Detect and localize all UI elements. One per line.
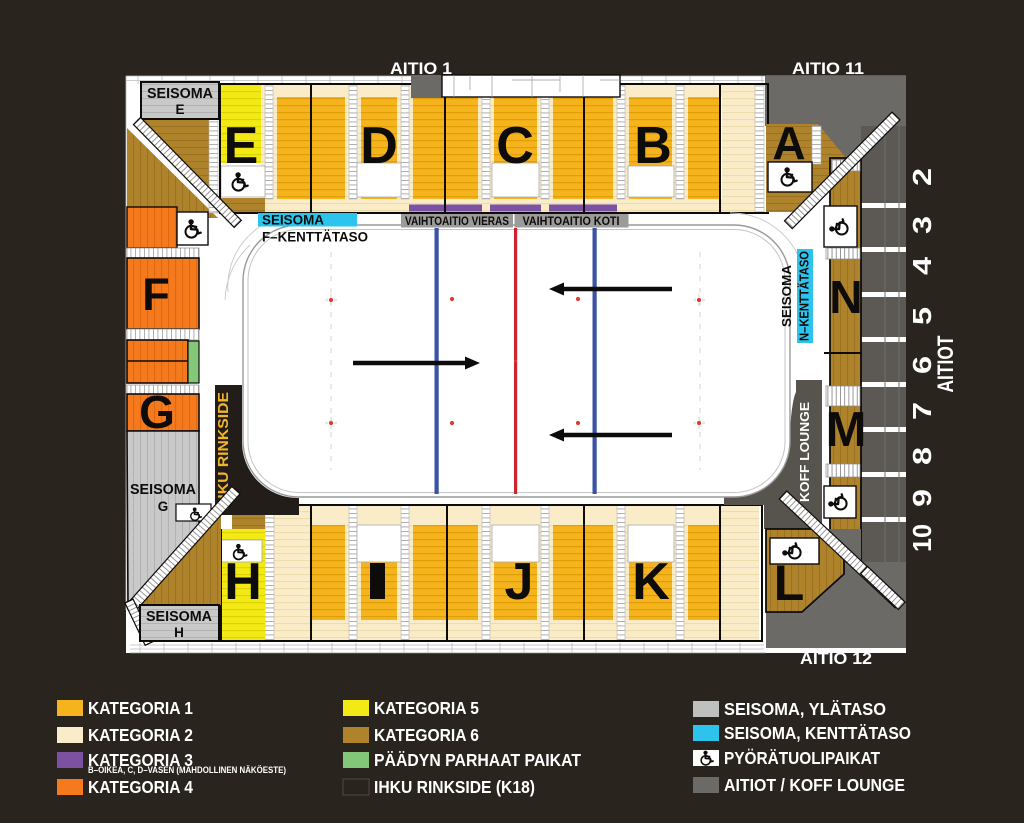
svg-text:6: 6 — [907, 356, 937, 374]
svg-text:K: K — [632, 553, 670, 611]
svg-text:SEISOMA, KENTTÄTASO: SEISOMA, KENTTÄTASO — [724, 723, 911, 743]
svg-text:KATEGORIA 1: KATEGORIA 1 — [88, 698, 193, 718]
svg-text:N–KENTTÄTASO: N–KENTTÄTASO — [797, 251, 812, 341]
svg-text:9: 9 — [907, 489, 937, 507]
svg-text:KATEGORIA 6: KATEGORIA 6 — [374, 725, 479, 745]
svg-text:2: 2 — [907, 168, 937, 186]
svg-text:AITIOT / KOFF LOUNGE: AITIOT / KOFF LOUNGE — [724, 775, 905, 795]
svg-text:SEISOMA: SEISOMA — [147, 86, 214, 102]
svg-text:C: C — [496, 117, 534, 175]
svg-text:E: E — [175, 102, 184, 117]
svg-text:N: N — [829, 271, 862, 323]
svg-text:KATEGORIA 4: KATEGORIA 4 — [88, 777, 193, 797]
svg-text:B: B — [634, 117, 672, 175]
svg-text:KATEGORIA 2: KATEGORIA 2 — [88, 725, 193, 745]
svg-text:PÄÄDYN PARHAAT PAIKAT: PÄÄDYN PARHAAT PAIKAT — [374, 750, 581, 770]
svg-text:H: H — [224, 553, 262, 611]
svg-text:VAIHTOAITIO VIERAS: VAIHTOAITIO VIERAS — [405, 214, 509, 228]
svg-text:L: L — [774, 555, 805, 611]
svg-text:J: J — [505, 553, 534, 611]
svg-text:SEISOMA: SEISOMA — [780, 265, 794, 327]
svg-text:VAIHTOAITIO KOTI: VAIHTOAITIO KOTI — [523, 214, 620, 228]
svg-text:KATEGORIA 5: KATEGORIA 5 — [374, 698, 479, 718]
svg-text:E: E — [224, 117, 259, 175]
svg-text:SEISOMA, YLÄTASO: SEISOMA, YLÄTASO — [724, 699, 886, 719]
svg-text:AITIO 12: AITIO 12 — [800, 649, 872, 668]
svg-text:M: M — [826, 403, 867, 457]
svg-text:8: 8 — [907, 447, 937, 465]
svg-text:A: A — [772, 117, 805, 169]
svg-text:F–KENTTÄTASO: F–KENTTÄTASO — [262, 229, 368, 245]
svg-text:D: D — [360, 117, 398, 175]
svg-text:AITIO 1: AITIO 1 — [390, 59, 452, 78]
svg-text:5: 5 — [907, 307, 937, 325]
svg-text:G: G — [158, 499, 169, 514]
svg-text:7: 7 — [907, 402, 937, 420]
svg-text:SEISOMA: SEISOMA — [146, 609, 213, 625]
svg-text:F: F — [142, 269, 170, 320]
svg-text:IHKU RINKSIDE (K18): IHKU RINKSIDE (K18) — [374, 777, 535, 797]
svg-text:KOFF LOUNGE: KOFF LOUNGE — [797, 402, 812, 502]
svg-text:PYÖRÄTUOLIPAIKAT: PYÖRÄTUOLIPAIKAT — [724, 748, 880, 768]
svg-text:SEISOMA: SEISOMA — [262, 212, 324, 228]
svg-text:B–OIKEA, C, D–VASEN (MAHDOLLIN: B–OIKEA, C, D–VASEN (MAHDOLLINEN NÄKÖEST… — [88, 765, 286, 775]
svg-text:AITIO 11: AITIO 11 — [792, 59, 864, 78]
svg-text:3: 3 — [907, 216, 937, 234]
svg-text:10: 10 — [907, 524, 937, 552]
svg-text:SEISOMA: SEISOMA — [130, 482, 197, 498]
svg-text:4: 4 — [907, 256, 937, 275]
svg-text:H: H — [174, 625, 184, 640]
